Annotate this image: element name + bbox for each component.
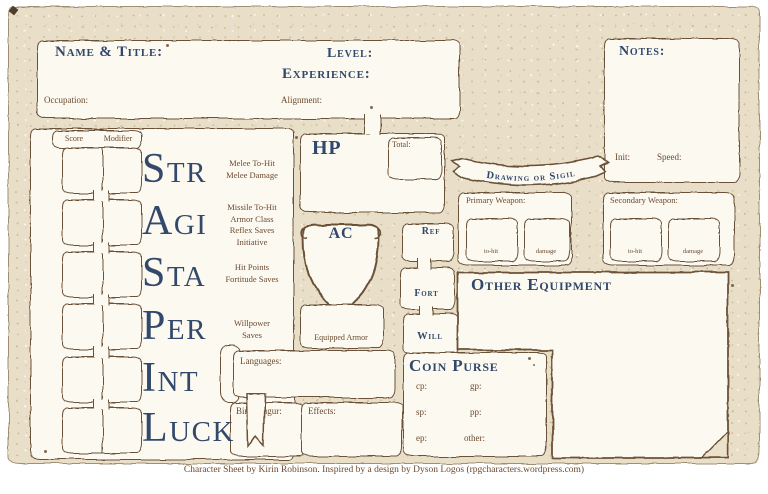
ink-dot: [44, 450, 47, 453]
secondary-damage-label: damage: [668, 248, 718, 255]
stat-name-sta: Sta: [142, 251, 206, 295]
stat-name-int: Int: [142, 356, 199, 400]
init-label: Init:: [615, 152, 630, 162]
hp-label: HP: [312, 138, 341, 158]
notes-label: Notes:: [619, 45, 665, 59]
gp-label: gp:: [470, 381, 482, 391]
stat-labels-sta: Hit Points Fortitude Saves: [202, 262, 302, 285]
primary-tohit-label: to-hit: [466, 248, 516, 255]
stat-label: Willpower: [202, 318, 302, 330]
stat-box-str: [62, 147, 142, 194]
stat-labels-str: Melee To-Hit Melee Damage: [202, 158, 302, 181]
stat-label: Initiative: [202, 237, 302, 249]
stat-name-str: Str: [142, 147, 207, 191]
languages-scroll-ribbon: [243, 393, 269, 457]
other-equipment-label: Other Equipment: [471, 276, 612, 293]
connector: [93, 190, 109, 201]
credit-line: Character Sheet by Kirin Robinson. Inspi…: [0, 465, 768, 475]
stat-label: Saves: [202, 330, 302, 342]
score-modifier-divider: [102, 252, 103, 297]
connector: [93, 294, 109, 305]
stat-label: Hit Points: [202, 262, 302, 274]
level-label: Level:: [327, 47, 373, 61]
character-sheet-page: Drawing or Sigil Name & Title: Occupatio…: [0, 0, 768, 494]
ep-label: ep:: [416, 433, 427, 443]
primary-damage-label: damage: [524, 248, 568, 255]
stat-label: Missile To-Hit: [202, 202, 302, 214]
name-title-label: Name & Title:: [55, 45, 163, 60]
stat-box-int: [62, 356, 142, 403]
experience-label: Experience:: [282, 67, 371, 82]
secondary-weapon-label: Secondary Weapon:: [610, 196, 678, 206]
stat-labels-agi: Missile To-Hit Armor Class Reflex Saves …: [202, 202, 302, 248]
stat-label: Melee Damage: [202, 170, 302, 182]
fort-label: Fort: [400, 289, 453, 299]
languages-label: Languages:: [240, 356, 281, 366]
modifier-header: Modifier: [96, 134, 140, 143]
pp-label: pp:: [470, 407, 482, 417]
stat-box-sta: [62, 251, 142, 298]
hp-total-label: Total:: [392, 140, 411, 149]
secondary-tohit-label: to-hit: [610, 248, 660, 255]
other-coin-label: other:: [464, 433, 485, 443]
connector: [93, 242, 109, 253]
ink-dot: [731, 284, 734, 287]
equipped-armor-label: Equipped Armor: [300, 333, 382, 342]
score-modifier-divider: [102, 408, 103, 453]
score-modifier-divider: [102, 304, 103, 349]
ink-dot: [528, 357, 531, 360]
coin-purse-label: Coin Purse: [409, 357, 499, 374]
ink-dot: [166, 44, 169, 47]
stat-name-luck: Luck: [142, 406, 235, 450]
connector: [417, 258, 431, 269]
speed-label: Speed:: [657, 152, 682, 162]
score-header: Score: [52, 134, 96, 143]
connector: [93, 346, 109, 358]
stat-box-per: [62, 303, 142, 350]
sigil-banner: Drawing or Sigil: [448, 150, 612, 196]
score-modifier-divider: [102, 200, 103, 245]
ink-dot: [370, 106, 373, 109]
ac-label: AC: [311, 226, 371, 242]
stat-box-agi: [62, 199, 142, 246]
stat-name-per: Per: [142, 304, 207, 348]
connector: [93, 399, 109, 409]
stat-box-luck: [62, 407, 142, 454]
sp-label: sp:: [416, 407, 427, 417]
equipped-armor-box: [300, 304, 384, 349]
cp-label: cp:: [416, 381, 427, 391]
connector: [419, 306, 433, 315]
stat-label: Armor Class: [202, 214, 302, 226]
score-modifier-divider: [102, 148, 103, 193]
ink-dot: [295, 136, 298, 139]
stat-label: Melee To-Hit: [202, 158, 302, 170]
stat-label: Fortitude Saves: [202, 274, 302, 286]
effects-label: Effects:: [308, 406, 336, 416]
stat-name-agi: Agi: [142, 199, 207, 243]
score-modifier-divider: [102, 357, 103, 402]
stat-label: Reflex Saves: [202, 225, 302, 237]
ref-label: Ref: [406, 227, 456, 237]
connector: [364, 114, 381, 135]
primary-weapon-label: Primary Weapon:: [466, 196, 525, 206]
occupation-label: Occupation:: [44, 95, 88, 105]
will-label: Will: [403, 332, 457, 343]
stat-labels-per: Willpower Saves: [202, 318, 302, 341]
alignment-label: Alignment:: [281, 95, 322, 105]
ink-dot: [533, 364, 535, 366]
